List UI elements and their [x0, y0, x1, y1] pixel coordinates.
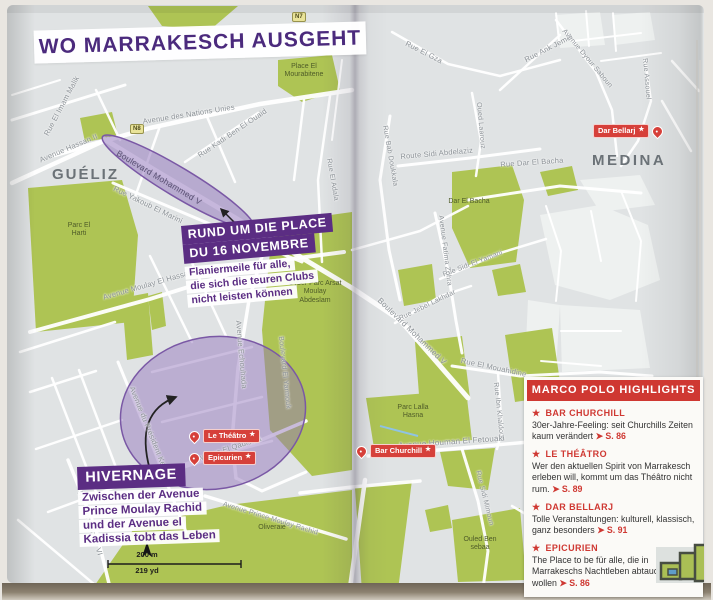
area-label-dar-el-bacha: Dar El Bacha — [442, 198, 496, 206]
page-ref: S. 91 — [607, 525, 628, 535]
highlight-name: LE THÉÂTRO — [545, 449, 607, 459]
page-arrow-icon: ➤ — [552, 484, 559, 494]
highlight-name: EPICURIEN — [545, 543, 598, 553]
area-label-ouled-ben-sebaa: Ouled Ben sebaa — [462, 536, 498, 553]
page-ref: S. 86 — [605, 431, 626, 441]
scale-imperial-label: 219 yd — [112, 566, 182, 575]
poi-label-le-theatro: Le Théâtro ★ — [203, 429, 260, 443]
guidebook-photo: WO MARRAKESCH AUSGEHT N7 N8 GUÉLIZ MEDIN… — [0, 0, 713, 600]
district-label-medina: MEDINA — [592, 152, 666, 169]
top-edge-shade — [7, 5, 704, 13]
road-badge-n8: N8 — [130, 124, 144, 134]
poi-dar-bellarj: Dar Bellarj ★ — [593, 124, 663, 138]
page-ref: S. 86 — [569, 578, 590, 588]
page-ref: S. 89 — [562, 484, 583, 494]
callout-hivernage: HIVERNAGE Zwischen der Avenue Prince Mou… — [77, 462, 220, 547]
road-badge-n7: N7 — [292, 12, 306, 22]
poi-name: Dar Bellarj — [598, 126, 636, 135]
highlights-header: MARCO POLO HIGHLIGHTS — [527, 380, 700, 401]
page-arrow-icon: ➤ — [596, 431, 603, 441]
poi-label-dar-bellarj: Dar Bellarj ★ — [593, 124, 649, 138]
district-label-gueliz: GUÉLIZ — [52, 166, 119, 183]
map-pin-icon — [187, 428, 203, 444]
poi-name: Le Théâtro — [208, 431, 246, 440]
poi-bar-churchill: Bar Churchill ★ — [356, 444, 436, 458]
callout-title: HIVERNAGE — [77, 463, 185, 490]
star-icon: ★ — [245, 454, 251, 461]
callout-place-16-novembre: RUND UM DIE PLACE DU 16 NOVEMBRE Flanier… — [181, 213, 339, 308]
poi-name: Epicurien — [208, 453, 242, 462]
locator-inset-canvas — [656, 543, 704, 583]
page-arrow-icon: ➤ — [559, 578, 566, 588]
highlight-text: The Place to be für alle, die in Marrake… — [532, 555, 673, 588]
locator-inset-map — [656, 543, 704, 583]
highlight-name: DAR BELLARJ — [545, 502, 613, 512]
poi-name: Bar Churchill — [375, 446, 422, 455]
star-icon: ★ — [639, 127, 645, 134]
star-icon: ★ — [249, 432, 255, 439]
map-pin-icon — [650, 123, 666, 139]
highlight-entry-le-theatro: ★ LE THÉÂTRO Wer den aktuellen Spirit vo… — [532, 449, 695, 495]
highlight-entry-bar-churchill: ★ BAR CHURCHILL 30er-Jahre-Feeling: seit… — [532, 408, 695, 442]
poi-le-theatro: Le Théâtro ★ — [189, 429, 260, 443]
star-icon: ★ — [425, 447, 431, 454]
area-label-oliveraie: Oliveraie — [250, 524, 294, 532]
left-page-curl — [7, 5, 35, 583]
area-label-place-el-mourabitene: Place El Mourabitene — [276, 63, 332, 80]
area-label-parc-lalla-hasna: Parc Lalla Hasna — [392, 404, 434, 421]
star-icon: ★ — [532, 503, 540, 512]
inset-water-block — [668, 569, 677, 575]
poi-label-bar-churchill: Bar Churchill ★ — [370, 444, 436, 458]
star-icon: ★ — [532, 544, 540, 553]
area-label-parc-el-harti: Parc El Harti — [62, 222, 96, 239]
map-pin-icon — [354, 443, 370, 459]
scale-metric-label: 200 m — [112, 550, 182, 559]
highlight-name: BAR CHURCHILL — [545, 408, 625, 418]
page-arrow-icon: ➤ — [597, 525, 604, 535]
star-icon: ★ — [532, 409, 540, 418]
highlight-entry-dar-bellarj: ★ DAR BELLARJ Tolle Veranstaltungen: kul… — [532, 502, 695, 536]
star-icon: ★ — [532, 450, 540, 459]
